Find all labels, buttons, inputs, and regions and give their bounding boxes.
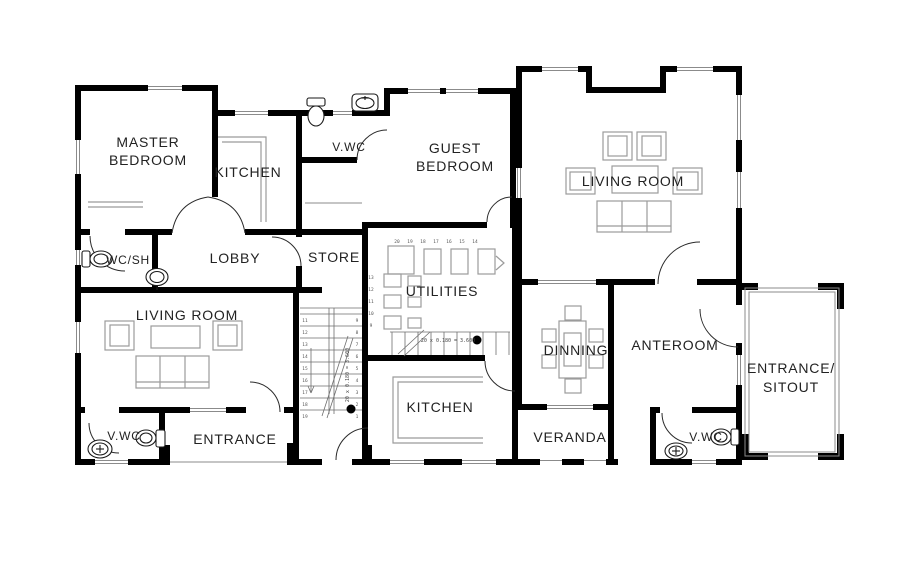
svg-text:3: 3 bbox=[356, 390, 359, 396]
vwc-top-fixtures bbox=[307, 94, 378, 126]
room-label-living-room-lower: LIVING ROOM bbox=[136, 307, 238, 323]
svg-text:8: 8 bbox=[356, 330, 359, 336]
svg-text:13: 13 bbox=[368, 275, 374, 281]
svg-text:5: 5 bbox=[356, 366, 359, 372]
svg-text:20: 20 bbox=[394, 239, 400, 245]
svg-text:15: 15 bbox=[459, 239, 465, 245]
svg-text:19: 19 bbox=[407, 239, 413, 245]
room-label-vwc-top: V.WC bbox=[332, 140, 365, 154]
svg-text:18: 18 bbox=[420, 239, 426, 245]
living-room-upper-door-arc bbox=[658, 242, 700, 284]
svg-text:16: 16 bbox=[446, 239, 452, 245]
guest-bedroom-door-arc bbox=[487, 197, 512, 222]
toilet-icon bbox=[156, 430, 165, 447]
room-label-living-room-upper: LIVING ROOM bbox=[582, 173, 684, 189]
room-label-kitchen-lower: KITCHEN bbox=[406, 399, 473, 415]
stair-dimension-note: 20 x 0.180 = 3.600 bbox=[421, 338, 475, 344]
room-label-vwc-lower-left: V.WC bbox=[107, 429, 140, 443]
toilet-icon bbox=[308, 106, 324, 126]
store-door-arc bbox=[272, 237, 301, 266]
svg-text:17: 17 bbox=[433, 239, 439, 245]
room-label-wc-sh: WC/SH bbox=[106, 253, 150, 267]
kitchen-top-door-arc bbox=[208, 197, 245, 233]
vwc-lower-right-door-arc bbox=[662, 413, 692, 443]
stair-dimension-note: 20 x 0.180 = 3.600 bbox=[345, 348, 351, 402]
svg-text:16: 16 bbox=[302, 378, 308, 384]
room-label-utilities: UTILITIES bbox=[406, 283, 479, 299]
living-room-lower-furniture bbox=[105, 321, 242, 388]
svg-text:6: 6 bbox=[356, 354, 359, 360]
room-label-master-bedroom: MASTER bbox=[116, 134, 179, 150]
toilet-icon bbox=[307, 98, 325, 106]
svg-text:19: 19 bbox=[302, 414, 308, 420]
svg-text:17: 17 bbox=[302, 390, 308, 396]
svg-text:13: 13 bbox=[302, 342, 308, 348]
kitchen-lower-door-arc bbox=[485, 361, 515, 391]
toilet-icon bbox=[82, 251, 90, 267]
svg-text:1: 1 bbox=[356, 414, 359, 420]
room-label-guest-bedroom: GUEST bbox=[429, 140, 481, 156]
room-label-entrance-sitout: ENTRANCE/ bbox=[747, 360, 835, 376]
stair-newel-dot bbox=[347, 405, 356, 414]
svg-text:9: 9 bbox=[370, 323, 373, 329]
svg-text:4: 4 bbox=[356, 378, 359, 384]
svg-text:12: 12 bbox=[302, 330, 308, 336]
svg-text:9: 9 bbox=[356, 318, 359, 324]
floor-plan-page: 11 12 13 14 15 16 17 18 19 9 8 7 6 5 4 3… bbox=[0, 0, 912, 561]
svg-text:10: 10 bbox=[368, 311, 374, 317]
svg-text:14: 14 bbox=[472, 239, 478, 245]
room-label-dinning: DINNING bbox=[544, 342, 609, 358]
room-label-lobby: LOBBY bbox=[210, 250, 261, 266]
floor-plan-drawing: 11 12 13 14 15 16 17 18 19 9 8 7 6 5 4 3… bbox=[0, 0, 912, 561]
room-label-master-bedroom: BEDROOM bbox=[109, 152, 187, 168]
toilet-icon bbox=[731, 429, 739, 445]
svg-text:11: 11 bbox=[368, 299, 374, 305]
room-label-guest-bedroom: BEDROOM bbox=[416, 158, 494, 174]
svg-text:15: 15 bbox=[302, 366, 308, 372]
svg-text:2: 2 bbox=[356, 402, 359, 408]
master-bedroom-door-arc bbox=[172, 197, 208, 233]
living-room-lower-door-arc bbox=[250, 382, 280, 412]
svg-text:7: 7 bbox=[356, 342, 359, 348]
room-label-veranda: VERANDA bbox=[533, 429, 606, 445]
svg-text:14: 14 bbox=[302, 354, 308, 360]
room-label-anteroom: ANTEROOM bbox=[631, 337, 718, 353]
room-label-vwc-lower-right: V.WC bbox=[689, 430, 722, 444]
room-label-kitchen-top: KITCHEN bbox=[214, 164, 281, 180]
room-label-entrance: ENTRANCE bbox=[193, 431, 276, 447]
room-label-store: STORE bbox=[308, 249, 360, 265]
room-label-entrance-sitout: SITOUT bbox=[763, 379, 819, 395]
svg-text:18: 18 bbox=[302, 402, 308, 408]
svg-text:11: 11 bbox=[302, 318, 308, 324]
svg-text:12: 12 bbox=[368, 287, 374, 293]
corridor-staircase: 11 12 13 14 15 16 17 18 19 9 8 7 6 5 4 3… bbox=[300, 308, 362, 420]
